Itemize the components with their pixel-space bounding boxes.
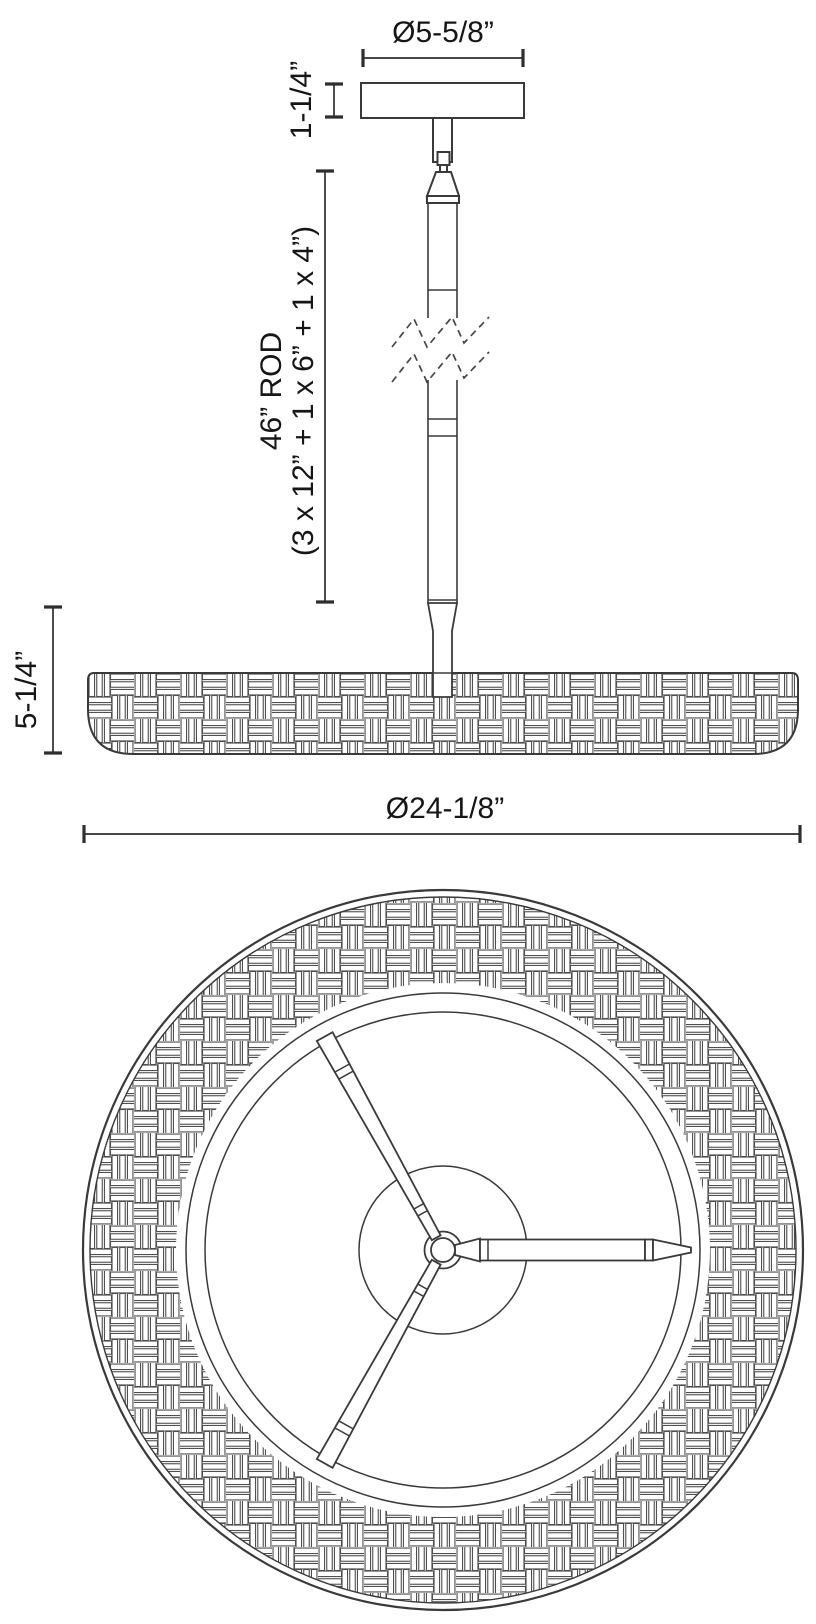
top-view	[83, 890, 803, 1610]
shade-height-label: 5-1/4”	[10, 651, 43, 729]
spider-arm-right	[455, 1239, 691, 1262]
swivel-knuckle	[438, 152, 450, 165]
swivel-neck	[440, 165, 447, 172]
break-line-lower	[392, 352, 489, 382]
rod-taper-stem	[428, 603, 457, 697]
canopy-height-label: 1-1/4”	[285, 61, 318, 139]
shade-diameter-dim	[84, 825, 800, 843]
rod-length-label-primary: 46” ROD	[255, 332, 288, 450]
shade-height-dim	[44, 607, 62, 753]
break-symbol	[392, 317, 489, 382]
canopy-diameter-dim	[363, 49, 523, 67]
side-view: Ø5-5/8” 1-1/4”	[10, 16, 800, 843]
break-line-upper	[392, 317, 489, 347]
canopy-diameter-label: Ø5-5/8”	[392, 16, 494, 49]
rod-length-label-breakdown: (3 x 12” + 1 x 6” + 1 x 4”)	[287, 226, 320, 556]
canopy	[361, 83, 524, 118]
technical-drawing-svg: Ø5-5/8” 1-1/4”	[0, 0, 816, 1624]
canopy-height-dim	[325, 84, 343, 117]
rod-upper	[428, 203, 457, 318]
rod-collar	[427, 196, 459, 203]
hang-straight-bell	[427, 172, 459, 196]
hub-circle	[431, 1238, 455, 1262]
rod-lower	[428, 380, 457, 603]
shade-diameter-label: Ø24-1/8”	[386, 792, 504, 825]
drawing-canvas: Ø5-5/8” 1-1/4”	[0, 0, 816, 1624]
